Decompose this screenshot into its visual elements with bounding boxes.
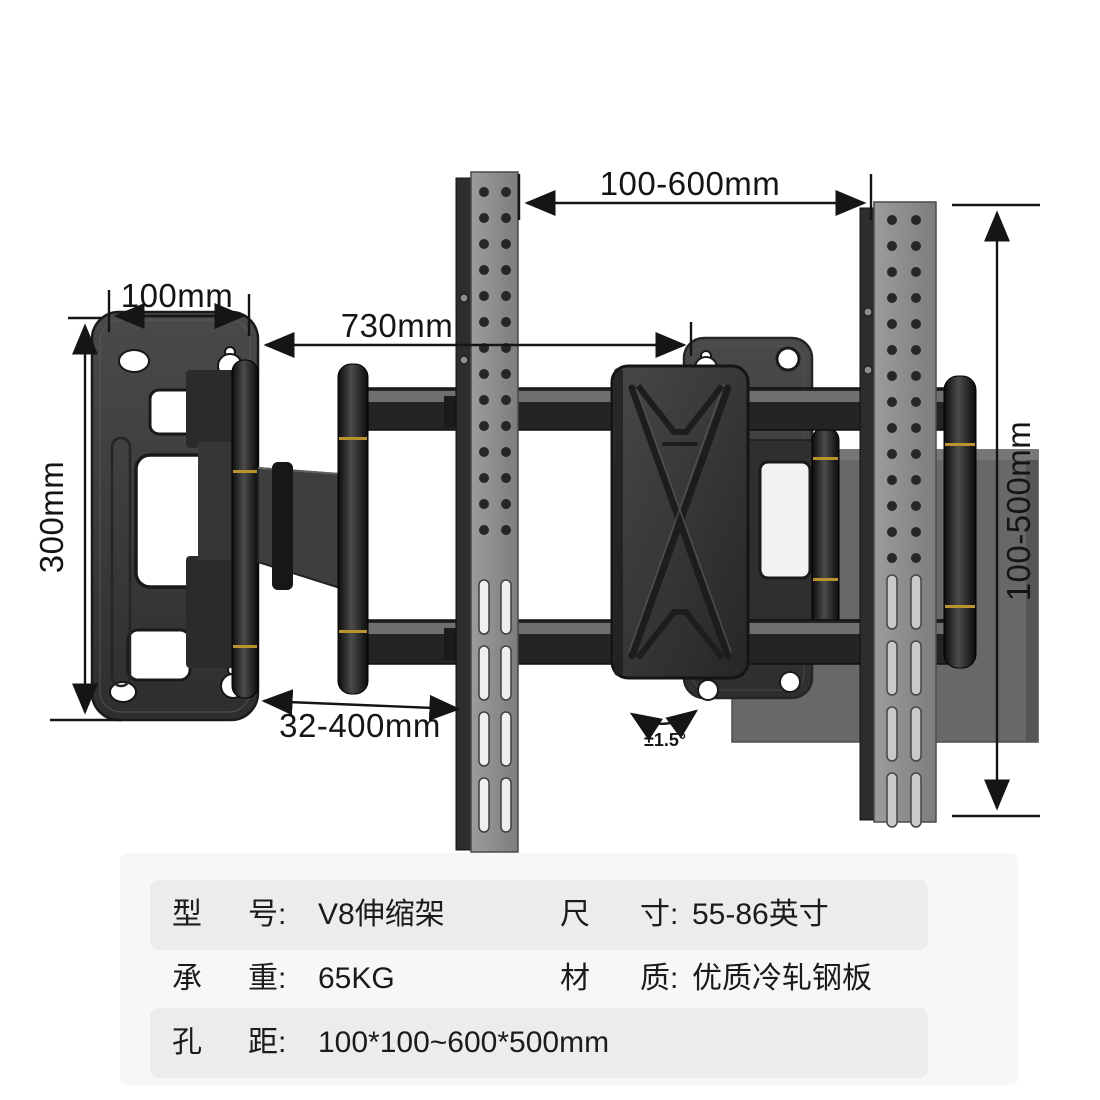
gold-ring — [813, 578, 838, 581]
dim-label-extension: 32-400mm — [279, 707, 441, 744]
gold-ring — [945, 605, 975, 608]
gold-ring — [233, 470, 257, 473]
product-diagram-page: 100-600mm 100mm 730mm 300mm 100-500mm 32… — [0, 0, 1100, 1100]
dim-label-arm-reach: 730mm — [341, 307, 454, 344]
spec-label: 寸: — [640, 880, 678, 950]
dim-label-top-span: 100-600mm — [600, 165, 781, 202]
spec-label: 尺 — [560, 880, 590, 950]
gold-ring — [945, 443, 975, 446]
screw — [864, 366, 872, 374]
spec-label: 孔 — [172, 1008, 202, 1078]
spec-label: 号: — [248, 880, 286, 950]
gold-ring — [339, 437, 367, 440]
folding-arm — [258, 462, 340, 590]
screw — [864, 308, 872, 316]
vesa-rail-left — [444, 172, 518, 852]
spec-row-load-material: 承 重: 65KG 材 质: 优质冷轧钢板 — [150, 950, 928, 1008]
screw — [460, 294, 468, 302]
tilt-arc — [632, 711, 696, 724]
spec-value-material: 优质冷轧钢板 — [692, 950, 872, 1008]
screw — [460, 356, 468, 364]
spec-label: 距: — [248, 1008, 286, 1078]
dim-label-vesa-height: 100-500mm — [1000, 421, 1037, 602]
dim-label-plate-width: 100mm — [121, 277, 234, 314]
spec-label: 质: — [640, 950, 678, 1008]
spec-value-size: 55-86英寸 — [692, 880, 829, 950]
mount-hole — [119, 350, 149, 372]
right-end-post — [944, 376, 976, 668]
gold-ring — [339, 630, 367, 633]
vesa-rail-right — [860, 202, 936, 827]
spec-row-hole-pitch: 孔 距: 100*100~600*500mm — [150, 1008, 928, 1078]
spec-value-load: 65KG — [318, 950, 395, 1008]
center-x-cover — [612, 366, 748, 678]
spec-label: 材 — [560, 950, 590, 1008]
spec-label: 承 — [172, 950, 202, 1008]
spec-table: 型 号: V8伸缩架 尺 寸: 55-86英寸 承 重: 65KG 材 质: 优… — [120, 853, 1018, 1085]
gold-ring — [233, 645, 257, 648]
spec-value-model: V8伸缩架 — [318, 880, 445, 950]
left-wall-plate — [92, 312, 258, 720]
plate-cutout — [128, 630, 190, 680]
spec-label: 重: — [248, 950, 286, 1008]
spec-label: 型 — [172, 880, 202, 950]
dim-label-plate-height: 300mm — [33, 461, 70, 574]
spec-value-hole-pitch: 100*100~600*500mm — [318, 1008, 609, 1078]
arm-elbow-post — [338, 364, 368, 694]
tilt-angle-label: ±1.5° — [644, 730, 686, 750]
gold-ring — [813, 457, 838, 460]
spec-row-model-size: 型 号: V8伸缩架 尺 寸: 55-86英寸 — [150, 880, 928, 950]
